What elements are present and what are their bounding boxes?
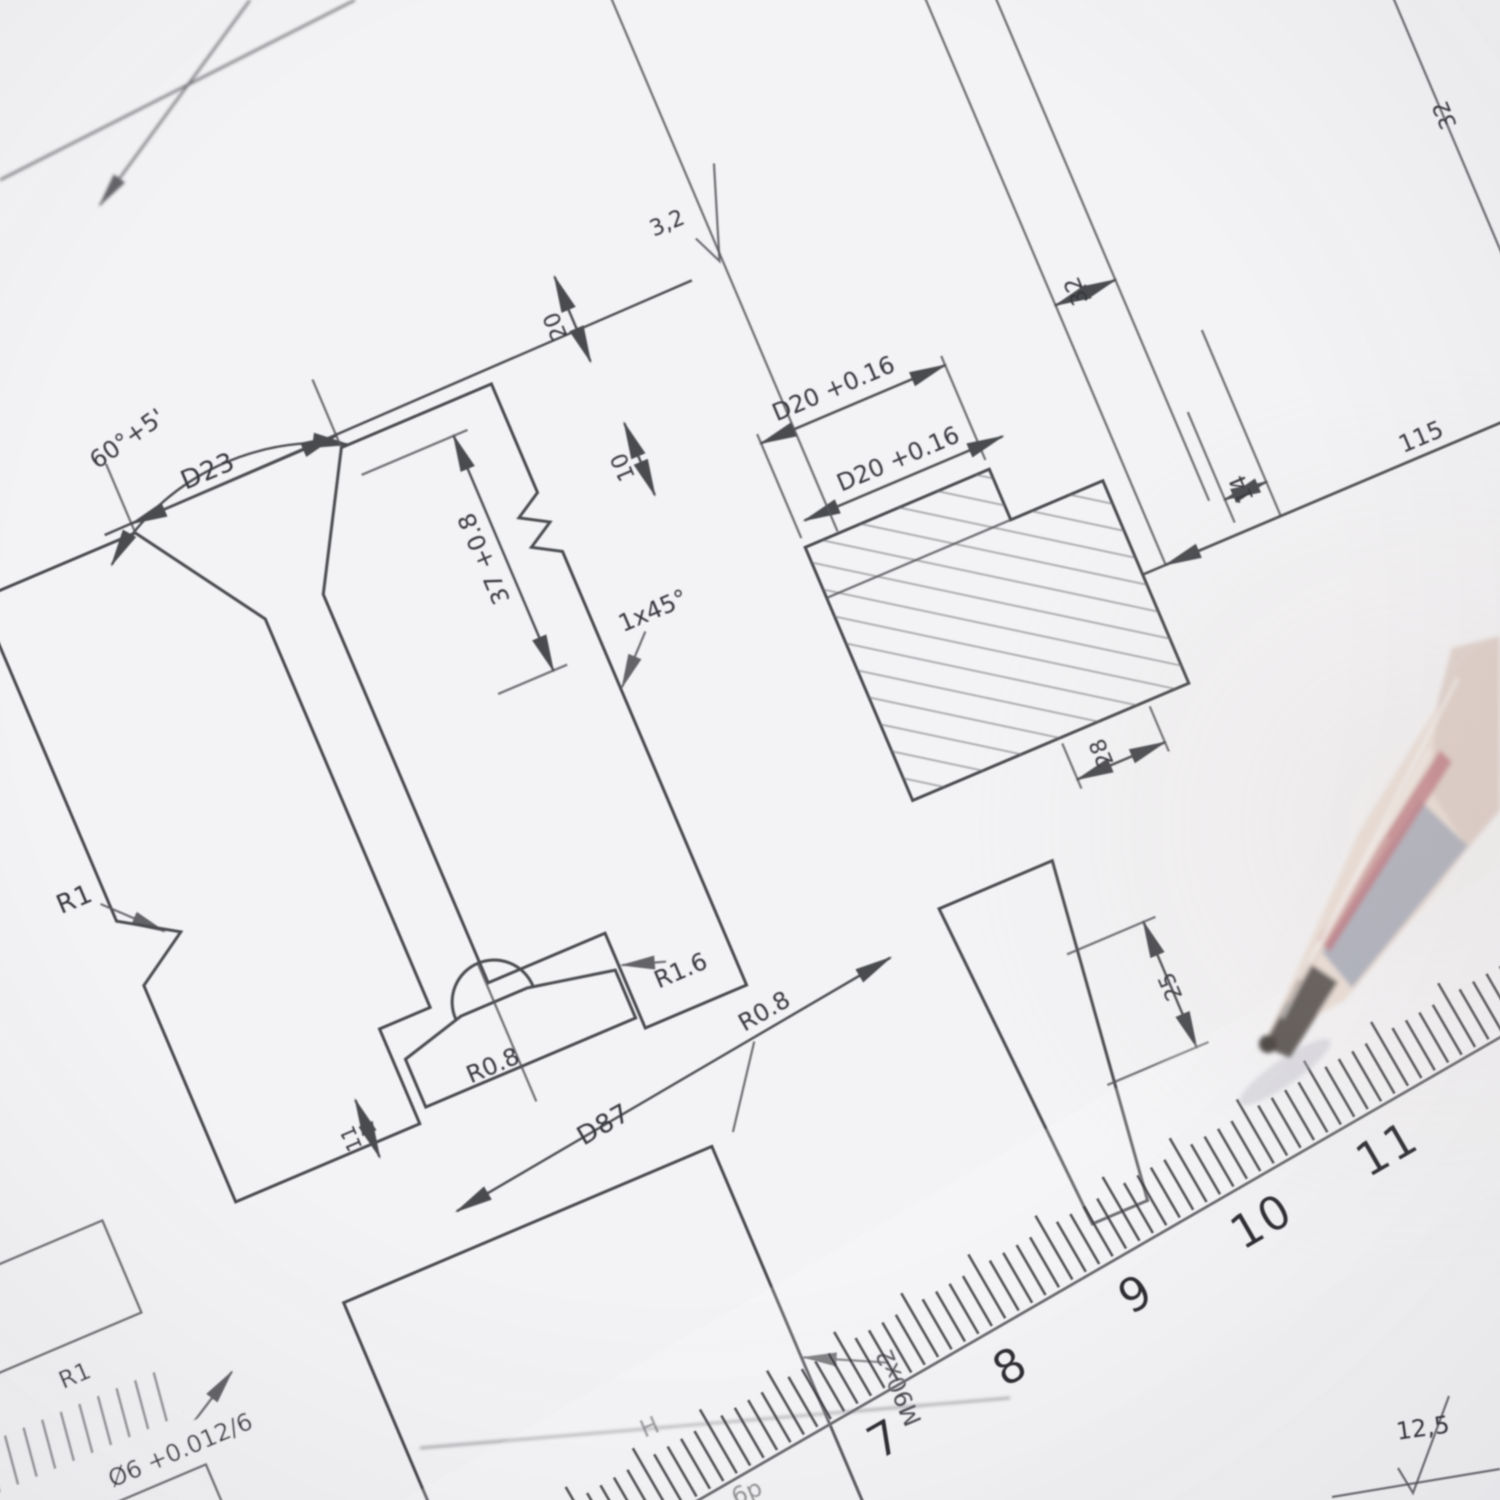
- photo-of-technical-drawing: 3,2 60°+5' D23 D20 +0.16 D20 +0.16 37 +0…: [0, 0, 1500, 1500]
- technical-drawing-canvas: 3,2 60°+5' D23 D20 +0.16 D20 +0.16 37 +0…: [0, 0, 1500, 1500]
- pencil-tip-point: [1259, 1035, 1277, 1053]
